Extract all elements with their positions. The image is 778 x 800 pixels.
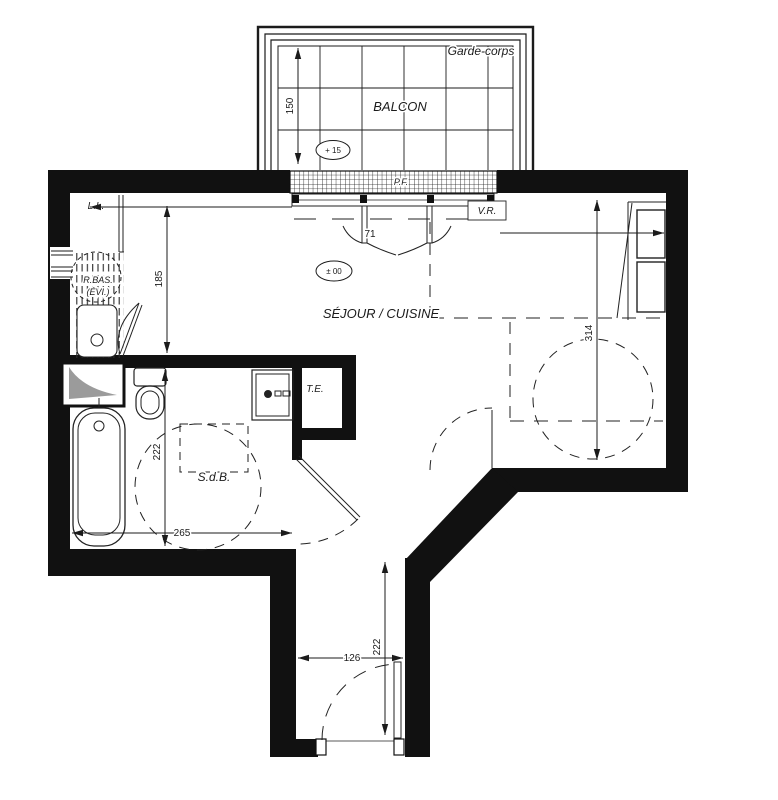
hall-door-swing — [430, 408, 492, 470]
dim-balcony-depth: 150 — [285, 48, 298, 164]
bathroom-turning-circle — [135, 424, 261, 550]
dim-222-bath-label: 222 — [152, 443, 163, 460]
washbasin-outer — [252, 370, 293, 420]
kitchen-partition — [119, 195, 124, 252]
electrical-panel-label: T.E. — [306, 384, 323, 395]
floor-plan-canvas: Garde-corps BALCON + 15 150 — [0, 0, 778, 800]
living-zone — [430, 202, 666, 470]
dim-265-label: 265 — [174, 528, 191, 539]
wall-corridor-right — [405, 558, 430, 757]
washbasin-inner — [256, 374, 289, 416]
toilet-tank — [134, 368, 166, 386]
kitchen-unit-sub-label: (ÉVI.) — [86, 287, 109, 297]
bathroom-label: S.d.B. — [198, 470, 231, 484]
dim-126-label: 126 — [344, 653, 361, 664]
bathroom-door-swing — [297, 519, 358, 544]
dim-185-label: 185 — [154, 270, 165, 287]
walls — [48, 170, 688, 757]
entry-jamb-right — [394, 739, 404, 755]
entry-door-leaf — [394, 662, 401, 738]
dashed-zone-lines — [430, 222, 664, 421]
window-swing-arcs — [343, 226, 451, 255]
living-turning-circle — [533, 339, 653, 459]
roller-shutter-label: V.R. — [478, 206, 497, 217]
wall-corridor-left — [270, 576, 296, 757]
entry-door — [322, 662, 401, 741]
guardrail-label: Garde-corps — [448, 44, 515, 58]
wall-entry-stub — [296, 739, 318, 757]
hall-door — [430, 408, 492, 470]
living-kitchen-label: SÉJOUR / CUISINE — [323, 306, 440, 321]
wardrobe-shelf-1 — [637, 210, 665, 258]
wall-bath-bottom — [48, 549, 296, 576]
dim-222-entry-label: 222 — [372, 638, 383, 655]
bathroom-door — [296, 456, 360, 544]
duct-box — [62, 363, 124, 406]
level-interior-value: ± 00 — [326, 267, 342, 276]
french-window-label: P.F. — [394, 177, 408, 187]
wall-top-right — [497, 170, 688, 193]
floor-plan: Garde-corps BALCON + 15 150 — [0, 0, 778, 800]
level-balcony-value: + 15 — [325, 146, 341, 155]
wall-top-left — [48, 170, 290, 193]
entry-jamb-left — [316, 739, 326, 755]
door-width-label: 71 — [364, 229, 376, 240]
dim-150-label: 150 — [285, 97, 296, 114]
washbasin-handle-1 — [275, 391, 281, 396]
wall-right — [666, 170, 688, 492]
wall-te-bottom — [302, 428, 356, 440]
entry-door-swing — [322, 664, 398, 740]
balcony-label: BALCON — [373, 99, 427, 114]
kitchen-sink — [77, 305, 117, 357]
kitchen-unit-label: R.BAS. — [83, 275, 113, 285]
washbasin-faucet — [265, 391, 272, 398]
bathroom-dashed-zone — [180, 424, 248, 472]
left-wall-grille — [50, 247, 74, 279]
dim-314-label: 314 — [584, 324, 595, 341]
bathroom-dashed-marks — [135, 424, 261, 550]
wardrobe-shelf-2 — [637, 262, 665, 312]
toilet-bowl-inner — [141, 391, 159, 414]
wall-living-bottom — [492, 468, 688, 492]
wardrobe-door-diagonal — [617, 203, 632, 318]
bathtub-faucet — [94, 421, 104, 431]
bathtub-outer — [73, 408, 125, 546]
